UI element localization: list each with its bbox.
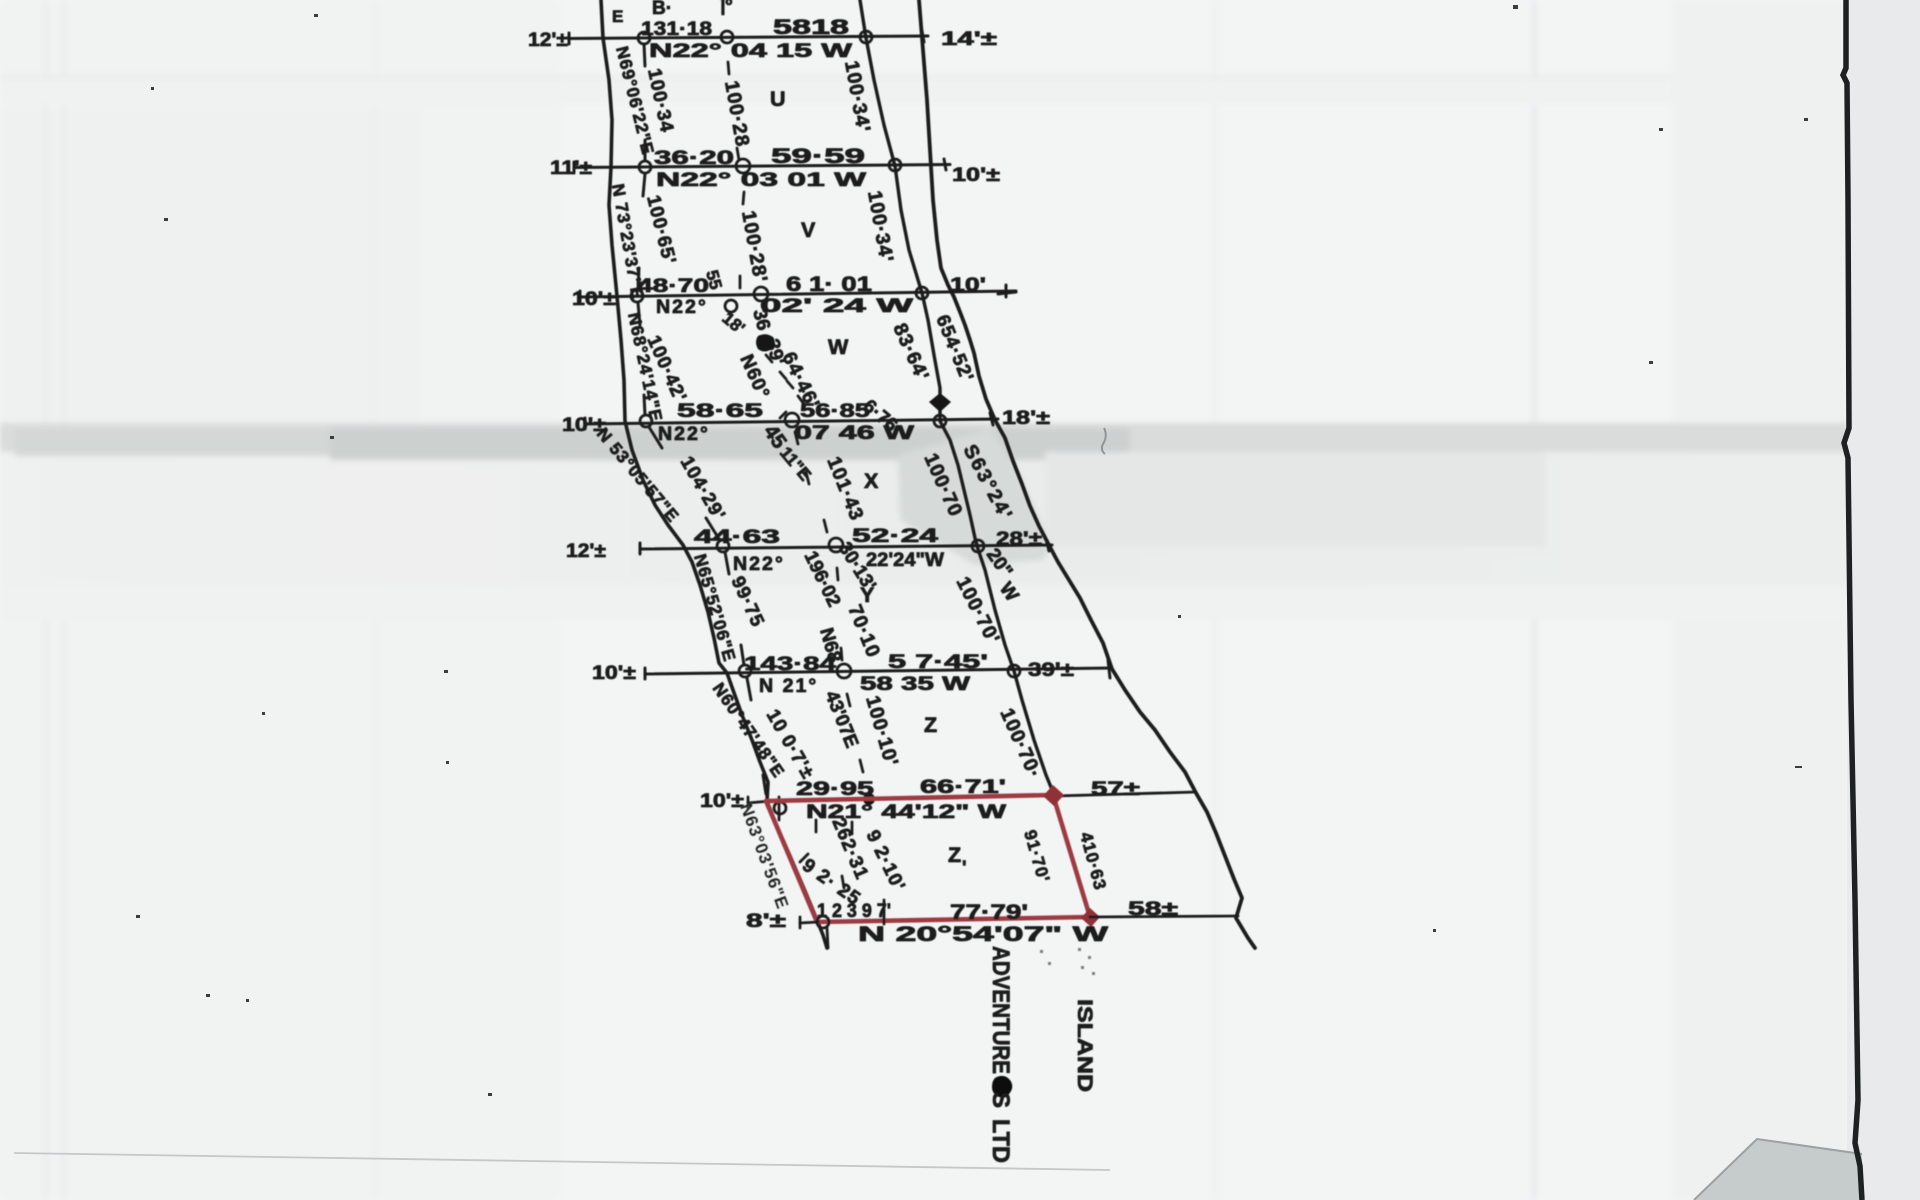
svg-text:X: X <box>864 469 879 493</box>
svg-text:02' 24 W: 02' 24 W <box>760 295 914 317</box>
svg-text:B·: B· <box>652 0 672 19</box>
svg-text:36·20: 36·20 <box>654 147 734 169</box>
svg-text:12'±: 12'± <box>566 540 606 562</box>
svg-text:N22° 04 15 W: N22° 04 15 W <box>649 40 853 62</box>
svg-text:10': 10' <box>950 274 986 296</box>
svg-text:5818: 5818 <box>773 16 849 39</box>
svg-text:W: W <box>828 335 849 359</box>
svg-text:8'±: 8'± <box>746 910 786 932</box>
svg-text:18'±: 18'± <box>1002 407 1050 429</box>
svg-text:Y: Y <box>860 583 874 607</box>
svg-text:10'±: 10'± <box>572 288 616 310</box>
svg-text:': ' <box>962 858 967 879</box>
svg-text:V: V <box>801 218 816 242</box>
svg-text:ADVENTURE: ADVENTURE <box>987 946 1014 1074</box>
svg-text:14'±: 14'± <box>941 28 997 50</box>
svg-text:39'±: 39'± <box>1028 659 1074 681</box>
svg-text:N22° 03 01 W: N22° 03 01 W <box>656 169 867 191</box>
svg-text:ISLAND: ISLAND <box>1073 999 1096 1092</box>
svg-text:11'±: 11'± <box>550 157 592 179</box>
svg-text:57±: 57± <box>1091 778 1140 800</box>
svg-text:Z: Z <box>948 843 961 867</box>
svg-text:⌉º: ⌉º <box>718 0 732 17</box>
svg-text:22'24"W: 22'24"W <box>866 549 945 571</box>
svg-text:44·63: 44·63 <box>694 526 780 548</box>
svg-text:U: U <box>770 87 786 111</box>
svg-text:5 7·45': 5 7·45' <box>888 651 988 673</box>
svg-text:N 20°54'07" W: N 20°54'07" W <box>858 923 1109 946</box>
svg-text:E: E <box>612 7 623 26</box>
svg-text:58±: 58± <box>1128 898 1178 920</box>
svg-text:28'±: 28'± <box>996 528 1042 550</box>
svg-text:131·18: 131·18 <box>641 18 712 40</box>
svg-text:N22°: N22° <box>658 423 710 445</box>
svg-text:12'±: 12'± <box>528 29 568 51</box>
svg-text:07 46 W: 07 46 W <box>794 422 915 444</box>
svg-text:N 21°: N 21° <box>759 675 818 697</box>
svg-text:58 35 W: 58 35 W <box>860 673 971 695</box>
svg-text:6 1· 01: 6 1· 01 <box>786 273 872 296</box>
svg-text:N22°: N22° <box>733 553 785 575</box>
svg-text:10'±: 10'± <box>592 662 636 684</box>
svg-text:1 2 3 9 7': 1 2 3 9 7' <box>817 900 891 922</box>
svg-text:Z: Z <box>924 713 937 737</box>
svg-text:52·24: 52·24 <box>852 525 938 547</box>
svg-text:48·70: 48·70 <box>637 275 709 297</box>
svg-text:143·84: 143·84 <box>744 653 836 675</box>
svg-text:10'±: 10'± <box>952 164 1000 186</box>
svg-text:LTD: LTD <box>987 1119 1014 1163</box>
svg-text:59·59: 59·59 <box>771 145 865 168</box>
svg-text:N22°: N22° <box>656 296 708 318</box>
svg-text:77·79': 77·79' <box>950 901 1028 924</box>
svg-text:S: S <box>987 1092 1014 1108</box>
svg-text:58·65: 58·65 <box>677 400 763 422</box>
